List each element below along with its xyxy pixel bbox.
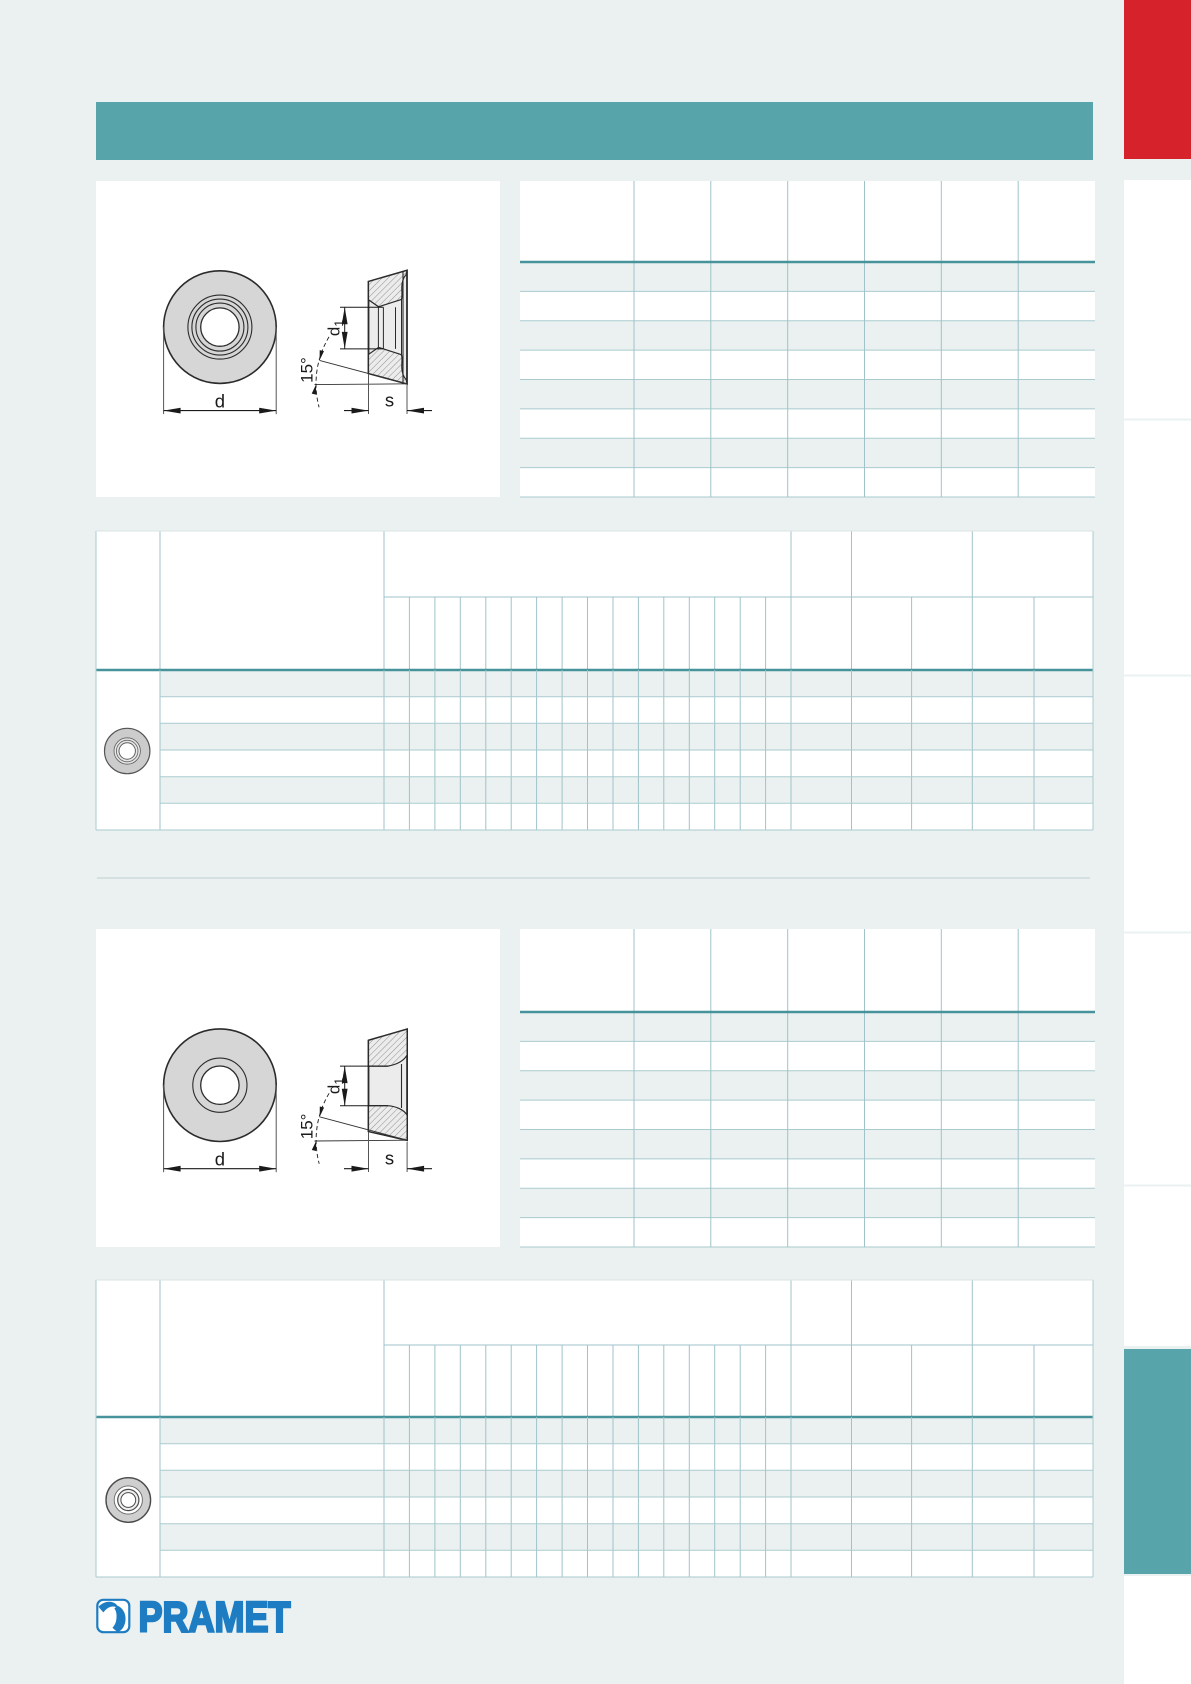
svg-text:s: s — [385, 390, 394, 411]
svg-text:d: d — [215, 391, 225, 412]
svg-text:PRAMET: PRAMET — [139, 1594, 291, 1642]
svg-text:15°: 15° — [298, 357, 317, 383]
svg-text:d: d — [215, 1149, 225, 1170]
svg-text:s: s — [385, 1148, 394, 1169]
svg-text:15°: 15° — [298, 1114, 317, 1140]
